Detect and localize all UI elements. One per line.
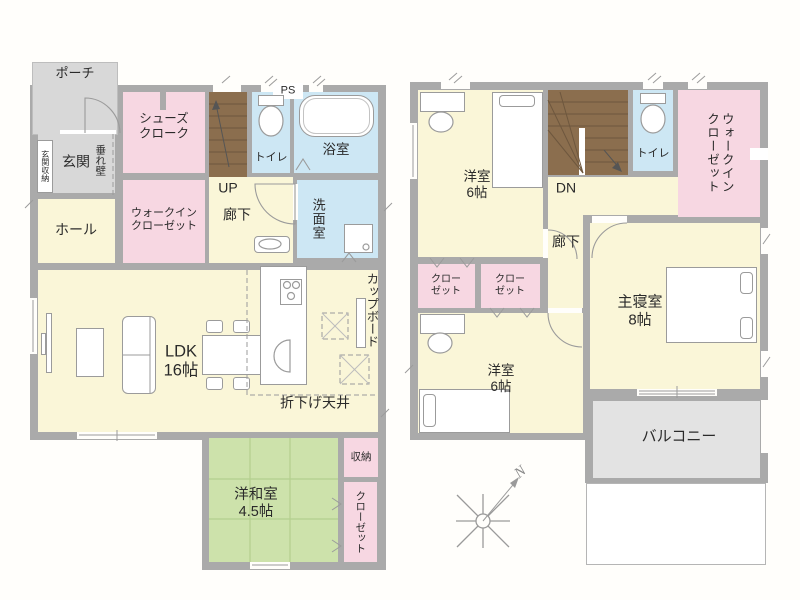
label-bedroom-b: 洋室 6帖 xyxy=(488,363,515,395)
floorplan-canvas: ポーチ 玄関収納 玄関 垂れ壁 シューズ クローク ホール ウォークイン クロー… xyxy=(0,0,800,600)
door-bedroom-a-gap xyxy=(543,229,548,258)
label-genkan-storage: 玄関収納 xyxy=(40,150,49,182)
label-cupboard: カップボード xyxy=(364,273,379,348)
door-master-gap xyxy=(592,216,627,223)
desk-bedroom-b xyxy=(420,314,465,334)
bathtub-inner xyxy=(303,98,370,134)
roof-outline xyxy=(586,483,766,565)
window-master-right-b xyxy=(761,351,768,377)
window-balcony xyxy=(637,389,717,396)
window-stairs-top xyxy=(213,85,241,92)
sofa xyxy=(122,316,156,394)
label-lowered-ceiling: 折下げ天井 xyxy=(280,395,350,412)
label-corridor-2f: 廊下 xyxy=(552,234,580,251)
label-toilet-1f: トイレ xyxy=(255,152,288,165)
window-master-right-a xyxy=(761,228,768,254)
label-ps: PS xyxy=(281,85,296,98)
window-f2-top-c xyxy=(688,82,707,89)
stairs-dn-stub-wall xyxy=(579,128,585,175)
label-master: 主寝室 8帖 xyxy=(617,293,662,328)
label-toilet-2f: トイレ xyxy=(637,148,670,161)
wic2-door-niche xyxy=(750,148,768,160)
shoes-cloak-wall-stub xyxy=(160,90,166,110)
label-washitsu: 洋和室 4.5帖 xyxy=(234,487,278,521)
toilet-tank-2f xyxy=(640,93,666,104)
label-compass-north: N xyxy=(511,463,530,483)
label-up: UP xyxy=(218,180,237,197)
label-wic-2f: ウォークイン クローゼット xyxy=(704,113,734,194)
tv-stand xyxy=(41,333,46,355)
genkan-step xyxy=(60,130,116,134)
label-bedroom-a: 洋室 6帖 xyxy=(464,169,491,201)
label-wic-1f: ウォークイン クローゼット xyxy=(131,207,197,233)
coffee-table xyxy=(76,328,104,377)
stairs-up xyxy=(209,92,247,177)
label-balcony: バルコニー xyxy=(642,428,717,446)
label-bath: 浴室 xyxy=(323,142,350,158)
label-shoes-cloak: シューズ クローク xyxy=(139,111,189,141)
washing-machine xyxy=(344,224,373,253)
label-hall: ホール xyxy=(55,222,97,239)
label-genkan: 玄関 xyxy=(62,154,90,171)
stairs-dn xyxy=(548,90,628,175)
dining-chair xyxy=(206,320,223,333)
label-closet-2f-a: クロー ゼット xyxy=(431,274,461,298)
label-porch: ポーチ xyxy=(55,65,94,80)
desk-bedroom-a xyxy=(420,92,465,112)
label-closet-1f: クローゼット xyxy=(354,491,366,554)
dining-chair xyxy=(233,320,250,333)
label-corridor-1f: 廊下 xyxy=(223,207,251,224)
door-bedroom-b-gap xyxy=(548,308,582,313)
dining-table xyxy=(202,335,262,375)
label-storage-1f: 収納 xyxy=(351,451,372,463)
window-ldk-left xyxy=(30,298,37,354)
window-f2-top-b xyxy=(643,82,663,89)
pillow-master-b xyxy=(740,317,753,339)
dining-chair xyxy=(233,377,250,390)
window-f1-top-b xyxy=(309,85,323,92)
label-tarekabe: 垂れ壁 xyxy=(94,144,106,176)
label-ldk: LDK 16帖 xyxy=(164,343,199,382)
label-closet-2f-b: クロー ゼット xyxy=(495,274,525,298)
window-f2-top-a xyxy=(441,82,470,89)
stove xyxy=(280,279,302,305)
balcony-right-opening xyxy=(761,400,768,453)
dining-chair xyxy=(206,377,223,390)
pillow-bedroom-a xyxy=(499,95,535,107)
window-ldk-bottom xyxy=(77,432,157,439)
pillow-bedroom-b xyxy=(423,394,436,427)
label-washroom: 洗面室 xyxy=(310,198,325,240)
window-washitsu-bottom xyxy=(250,562,290,569)
label-dn: DN xyxy=(556,180,576,197)
window-f2-left xyxy=(410,123,417,179)
tv xyxy=(46,313,52,373)
pillow-master-a xyxy=(740,272,753,294)
compass xyxy=(456,480,517,548)
hand-basin-counter xyxy=(254,236,290,253)
door-washroom-gap xyxy=(293,184,298,220)
